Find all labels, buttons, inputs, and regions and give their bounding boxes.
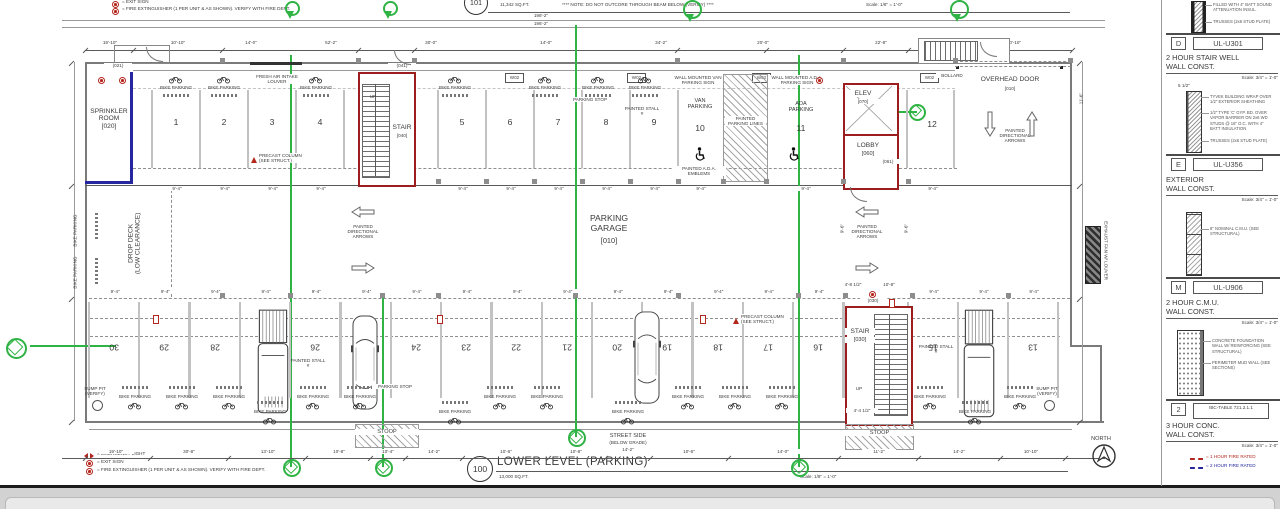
exit-sign-icon <box>112 1 119 8</box>
detail-scale: Scale: 3/4" = 1'-0" <box>1196 197 1278 202</box>
detail-divider <box>1166 277 1280 279</box>
dimension-label: 10'-6" <box>489 449 523 454</box>
wall-detail-graphic <box>1186 91 1202 153</box>
bike-parking-label: BIKE PARKING <box>719 394 751 399</box>
detail-title-underline <box>1166 195 1278 196</box>
dimension-label: 10'-6" <box>672 449 706 454</box>
detail-scale: Scale: 3/4" = 1'-0" <box>1196 75 1278 80</box>
wall-detail-graphic <box>1177 330 1204 396</box>
dimension-label: 9'-4" <box>100 289 130 294</box>
north-label: NORTH <box>1083 436 1119 442</box>
detail-note: TRUSSES (2x6 STUD PLATE) <box>1213 19 1275 24</box>
stoop <box>845 424 914 450</box>
overhead-door-label: OVERHEAD DOOR <box>960 76 1060 83</box>
stall-number: 17 <box>743 342 793 352</box>
stall-number: 23 <box>441 342 491 352</box>
ada-parking-label: ADA PARKING <box>772 101 830 114</box>
column <box>1068 58 1073 63</box>
detail-divider <box>1166 399 1280 401</box>
bike-icon <box>448 417 461 425</box>
exhaust-fan <box>1085 226 1101 284</box>
bike-rack <box>163 94 189 97</box>
legend-fire-extinguisher: = FIRE EXTINGUISHER (1 PER UNIT & AS SHO… <box>122 6 290 11</box>
precast-column-label: PRECAST COLUMN (SEE STRUCT.) <box>740 314 788 324</box>
detail-title: WALL CONST. <box>1166 63 1280 71</box>
column <box>288 293 293 298</box>
dimension-label: 9'-4" <box>503 289 533 294</box>
stall-divider <box>247 90 249 168</box>
bike-icon <box>128 402 141 410</box>
garage-label: PARKING GARAGE <box>582 214 636 233</box>
bike-parking-label: BIKE PARKING <box>529 85 561 90</box>
stall-number: 3 <box>248 118 296 128</box>
stall-number: 8 <box>582 118 630 128</box>
leader-line <box>1201 141 1209 142</box>
grid-marker-tail <box>953 14 961 22</box>
bike-icon <box>493 402 506 410</box>
detail-code: UL-U906 <box>1193 281 1263 294</box>
bike-parking-label: BIKE PARKING <box>766 394 798 399</box>
dimension-label: 14'-0" <box>766 449 800 454</box>
detail-title-underline <box>1166 318 1278 319</box>
leader-line <box>1201 97 1209 98</box>
column <box>484 179 489 184</box>
two-hour-rated-swatch <box>1190 467 1203 469</box>
grid-marker-tail <box>384 11 392 19</box>
stall-number: 16 <box>793 342 843 352</box>
stall-divider <box>88 302 90 398</box>
lower-plan-scale: Scale: 1/8" = 1'-0" <box>800 474 880 479</box>
parking-stop-label: PARKING STOP <box>568 97 612 102</box>
dimension-label: 9'-4" <box>162 186 192 191</box>
dimension-label: 9'-4" <box>919 289 949 294</box>
stall-number: 26 <box>290 342 340 352</box>
dimension-label: 10'-10" <box>1014 449 1048 454</box>
detail-tag-letter: E <box>1171 158 1186 171</box>
exit-sign-icon <box>86 460 93 467</box>
leader-line <box>1205 22 1212 23</box>
below-grade-label: (BELOW GRADE) <box>598 440 658 445</box>
architectural-sheet: 101 11,342 SQ.FT. **** NOTE: DO NOT OUTC… <box>0 0 1280 509</box>
stall-number: 6 <box>486 118 534 128</box>
bike-parking-label: BIKE PARKING <box>439 85 471 90</box>
bike-parking-label: BIKE PARKING <box>959 409 991 414</box>
detail-code: IBC-TABLE 721.2.1.1 <box>1193 403 1269 419</box>
stall-divider <box>691 302 693 398</box>
column <box>841 58 846 63</box>
legend-one-hour: = 1 HOUR FIRE RATED <box>1206 454 1256 459</box>
door-tag: (030) <box>860 298 886 303</box>
column <box>953 58 958 63</box>
bike-icon <box>775 402 788 410</box>
dimension-label: 9'-4" <box>150 289 180 294</box>
dimension-label: 9'-4" <box>791 186 821 191</box>
landing-stairs <box>924 41 978 61</box>
bike-parking-label: BIKE PARKING <box>72 211 77 251</box>
directional-arrows-label: PAINTED DIRECTIONAL ARROWS <box>347 224 379 239</box>
stoop <box>355 424 419 448</box>
door-swing-arc <box>850 187 867 202</box>
dimension-label: 9'-4" <box>210 186 240 191</box>
fire-extinguisher-icon <box>869 291 876 298</box>
exterior-wall-right <box>1070 62 1072 347</box>
bike-rack <box>95 258 98 284</box>
dimension-label: 20'-0" <box>746 40 780 45</box>
upper-plan-scale: Scale: 1/8" = 1'-0" <box>866 2 946 7</box>
ada-wheelchair-icon <box>694 147 705 160</box>
room-label-lobby: LOBBY <box>850 142 886 149</box>
overhead-door-line <box>955 66 1071 67</box>
dimension-label: 9'-4" <box>754 289 784 294</box>
precast-marker <box>733 318 739 324</box>
bike-rack <box>769 386 795 389</box>
precast-column-label: PRECAST COLUMN (SEE STRUCT.) <box>258 153 306 163</box>
stall-divider <box>138 302 140 398</box>
bike-icon <box>309 76 322 84</box>
column <box>380 293 385 298</box>
dimension-label: 9'-4" <box>258 186 288 191</box>
column <box>676 293 681 298</box>
stall-divider <box>490 302 492 398</box>
dimension-label: 14'-2" <box>417 449 451 454</box>
dimension-label: 9'-4" <box>640 186 670 191</box>
stair-treads <box>874 314 908 416</box>
stall-number: 7 <box>534 118 582 128</box>
bike-parking-label: BIKE PARKING <box>484 394 516 399</box>
overhead-door-line <box>955 61 1071 62</box>
dimension-label: 10'-8" <box>559 449 593 454</box>
stall-number: 29 <box>139 342 189 352</box>
stall-divider <box>199 90 201 168</box>
dimension-label: 14'-2" <box>598 447 658 452</box>
bike-rack <box>615 401 641 404</box>
sump-pit-label: SUMP PIT (VERIFY) <box>1032 386 1062 396</box>
bike-icon <box>448 76 461 84</box>
dimension-label: 4'-4 1/2" <box>846 408 878 413</box>
grid-marker-tail <box>686 14 694 22</box>
dimension-label: 10'-8" <box>874 282 904 287</box>
bike-parking-label: BIKE PARKING <box>297 394 329 399</box>
stall-divider <box>591 302 593 398</box>
room-label-elev: ELEV <box>847 90 879 97</box>
dim-tick <box>1070 47 1076 53</box>
drop-deck-label: DROP DECK (LOW CLEARANCE) <box>128 197 143 289</box>
up-label: UP <box>850 386 868 391</box>
detail-code: UL-U301 <box>1193 37 1263 50</box>
bike-icon <box>681 402 694 410</box>
bike-rack <box>300 386 326 389</box>
painted-stall-label: PAINTED STALL # <box>624 106 660 116</box>
stall-divider <box>533 90 535 168</box>
dimension-label: 10'-8" <box>322 449 356 454</box>
painted-stall-label: PAINTED STALL # <box>918 344 954 354</box>
stall-number: 9 <box>630 118 678 128</box>
stall-divider <box>906 90 908 168</box>
bike-parking-label: BIKE PARKING <box>672 394 704 399</box>
upper-plan-number-bubble: 101 <box>464 0 488 15</box>
bike-rack <box>442 94 468 97</box>
room-tag: [060] <box>850 151 886 157</box>
bike-parking-label: BIKE PARKING <box>208 85 240 90</box>
bike-icon <box>923 402 936 410</box>
bike-icon <box>353 402 366 410</box>
painted-stall-label: PAINTED STALL # <box>290 358 326 368</box>
overhead-door-tag: [010] <box>975 86 1045 91</box>
bike-rack <box>962 401 988 404</box>
dimension-label: 9'-4" <box>301 289 331 294</box>
dimension-label: 14'-0" <box>234 40 268 45</box>
column <box>580 179 585 184</box>
dimension-label: 34'-2" <box>644 40 678 45</box>
detail-note: CONCRETE FOUNDATION WALL W/ REINFORCING … <box>1212 338 1274 354</box>
door-tag: (041) <box>388 63 416 68</box>
stall-number: 1 <box>152 118 200 128</box>
van-parking-label: VAN PARKING <box>677 98 723 111</box>
detail-note: FILLED WITH 4" BATT SOUND ATTENUATION IN… <box>1213 2 1275 13</box>
stall-number: 21 <box>542 342 592 352</box>
dimension-label: 9'-4" <box>251 289 281 294</box>
column <box>764 179 769 184</box>
dimension-label: 11'-6" <box>1078 84 1083 114</box>
dimension-label: 14'-0" <box>529 40 563 45</box>
room-label-stair: STAIR <box>845 328 875 335</box>
bike-parking-label: BIKE PARKING <box>254 409 286 414</box>
grid-marker-tail <box>286 11 294 19</box>
lower-title-underline <box>496 471 1068 472</box>
upper-plan-sqft: 11,342 SQ.FT. <box>500 2 558 7</box>
stall-number: 22 <box>491 342 541 352</box>
stall-number: 18 <box>693 342 743 352</box>
dimension-label: 9'-4" <box>918 186 948 191</box>
stall-number: 4 <box>296 118 344 128</box>
stall-line <box>90 336 843 337</box>
dimension-label: 11'-2" <box>862 449 896 454</box>
grid-line <box>290 55 292 467</box>
bike-icon <box>175 402 188 410</box>
dimension-label: 52'-2" <box>314 40 348 45</box>
stall-divider <box>541 302 543 398</box>
street-side-label: STREET SIDE <box>598 433 658 439</box>
stall-number: 30 <box>89 342 139 352</box>
bike-rack <box>532 94 558 97</box>
bike-parking-label: BIKE PARKING <box>531 394 563 399</box>
dimension-label: 9'-4" <box>553 289 583 294</box>
bike-parking-label: BIKE PARKING <box>612 409 644 414</box>
leader-line <box>1203 363 1211 364</box>
dimension-label: 9'-4" <box>352 289 382 294</box>
fire-marker <box>889 299 895 308</box>
directional-arrows-label: PAINTED DIRECTIONAL ARROWS <box>995 128 1035 143</box>
chrome-inner-window <box>5 497 1275 509</box>
drop-deck-boundary <box>171 190 172 297</box>
stall-divider <box>1057 302 1059 398</box>
stair-rail <box>889 314 890 414</box>
column <box>910 293 915 298</box>
stall-divider <box>957 302 959 398</box>
leader-line <box>1201 113 1209 114</box>
stall-line <box>89 298 1070 299</box>
detail-dim: 5 1/2" <box>1178 83 1208 88</box>
stall-front-line <box>133 168 957 169</box>
stall-line <box>90 318 843 319</box>
column <box>906 179 911 184</box>
detail-divider <box>1166 154 1280 156</box>
fire-marker <box>437 315 443 324</box>
one-hour-rated-swatch <box>1190 458 1203 460</box>
fire-marker <box>700 315 706 324</box>
right-arrow <box>856 262 878 274</box>
bike-rack <box>722 386 748 389</box>
dimension-label: 9'-4" <box>704 289 734 294</box>
stall-divider <box>343 90 345 168</box>
dimension-label: 9'-4" <box>804 289 834 294</box>
room-label-sprinkler: SPRINKLER ROOM [020] <box>86 108 132 130</box>
dim-tick <box>69 420 75 426</box>
dimension-label: 14'-2" <box>942 449 976 454</box>
column <box>220 293 225 298</box>
left-arrow <box>352 206 374 218</box>
bike-icon <box>621 417 634 425</box>
fire-marker <box>153 315 159 324</box>
exhaust-fan-label: EXHAUST FAN W/ LOUVER <box>1103 221 1108 281</box>
stoop-label: STOOP <box>845 430 914 436</box>
fire-extinguisher-icon <box>816 77 823 84</box>
leader-line <box>1203 341 1211 342</box>
ada-wheelchair-icon <box>788 147 799 160</box>
garage-tag: [010] <box>582 237 636 245</box>
detail-tag-letter: 2 <box>1171 403 1186 416</box>
stall-divider <box>485 90 487 168</box>
sprinkler-rated-wall <box>85 181 132 184</box>
column <box>843 293 848 298</box>
bike-rack <box>95 213 98 239</box>
directional-arrows-label: PAINTED DIRECTIONAL ARROWS <box>851 224 883 239</box>
bike-rack <box>442 401 468 404</box>
detail-tag-letter: M <box>1171 281 1186 294</box>
dimension-label: 4'-8 1/2" <box>838 282 868 287</box>
column <box>573 293 578 298</box>
dimension-label: 30'-8" <box>172 449 206 454</box>
painted-lines-label: PAINTED PARKING LINES <box>725 116 766 126</box>
sidebar-separator <box>1161 0 1162 486</box>
sump-pit <box>1044 400 1055 411</box>
parked-car <box>632 310 662 406</box>
stall-divider <box>792 302 794 398</box>
dimension-label: 9'-4" <box>969 289 999 294</box>
stall-number: 10 <box>677 124 723 134</box>
fresh-air-label: FRESH AIR INTAKE LOUVER <box>250 74 304 84</box>
dimension-label: 9'-6" <box>903 215 908 243</box>
detail-scale: Scale: 3/4" = 1'-0" <box>1196 443 1278 448</box>
column <box>412 58 417 63</box>
bike-rack <box>632 94 658 97</box>
louver <box>250 62 302 65</box>
column <box>721 179 726 184</box>
room-label-stair: STAIR <box>390 124 414 131</box>
stall-number: 5 <box>438 118 486 128</box>
legend-two-hour: = 2 HOUR FIRE RATED <box>1206 463 1256 468</box>
bike-parking-label: BIKE PARKING <box>914 394 946 399</box>
bike-parking-label: BIKE PARKING <box>213 394 245 399</box>
column <box>532 179 537 184</box>
wall-detail-graphic <box>1191 1 1206 33</box>
dimension-label: 9'-4" <box>592 186 622 191</box>
grid-line <box>575 25 577 437</box>
fire-extinguisher-icon <box>119 77 126 84</box>
grid-line <box>798 55 800 467</box>
bike-icon <box>169 76 182 84</box>
bike-rack <box>487 386 513 389</box>
detail-note: TYVEK BUILDING WRAP OVER 1/2" EXTERIOR S… <box>1210 94 1272 105</box>
dim-line <box>62 27 1105 28</box>
precast-marker <box>251 157 257 163</box>
stoop-label: STOOP <box>355 429 419 435</box>
stall-number: 11 <box>772 124 830 134</box>
dimension-label: 9'-6" <box>839 215 844 243</box>
exterior-wall-jog <box>1070 345 1102 347</box>
bike-icon <box>728 402 741 410</box>
bike-icon <box>263 417 276 425</box>
column <box>220 58 225 63</box>
left-arrow <box>856 206 878 218</box>
bike-icon <box>538 76 551 84</box>
dimension-label: 9'-4" <box>448 186 478 191</box>
exterior-wall-bottom <box>85 421 1104 423</box>
bike-rack <box>216 386 242 389</box>
column <box>436 179 441 184</box>
stall-number: 28 <box>190 342 240 352</box>
room-tag: [030] <box>845 337 875 343</box>
column <box>796 293 801 298</box>
window-tag: W02 <box>505 73 524 83</box>
leader-line <box>1201 229 1209 230</box>
dimension-label: 19'-10" <box>99 449 133 454</box>
lower-plan-sqft: 13,000 SQ.FT. <box>499 474 559 479</box>
bike-rack <box>169 386 195 389</box>
legend-exit-sign: = EXIT SIGN <box>97 459 124 464</box>
parking-stop-label: PARKING STOP <box>372 384 418 389</box>
dimension-label: 10'-4" <box>371 449 405 454</box>
detail-title: WALL CONST. <box>1166 308 1280 316</box>
bike-parking-label: BIKE PARKING <box>300 85 332 90</box>
stall-divider <box>1007 302 1009 398</box>
detail-code: UL-U356 <box>1193 158 1263 171</box>
bike-icon <box>968 417 981 425</box>
bike-icon <box>306 402 319 410</box>
bike-icon <box>591 76 604 84</box>
bike-rack <box>1007 386 1033 389</box>
bike-parking-label: BIKE PARKING <box>160 85 192 90</box>
room-tag: [070] <box>847 99 879 104</box>
column <box>356 58 361 63</box>
bike-rack <box>211 94 237 97</box>
detail-title-underline <box>1166 73 1278 74</box>
dimension-label: 9'-4" <box>496 186 526 191</box>
bike-rack <box>122 386 148 389</box>
bike-parking-label: BIKE PARKING <box>344 394 376 399</box>
detail-scale: Scale: 3/4" = 1'-0" <box>1196 320 1278 325</box>
leader-line <box>1205 5 1212 6</box>
bike-rack <box>917 386 943 389</box>
stall-divider <box>953 90 955 168</box>
dimension-label: 9'-4" <box>201 289 231 294</box>
dimension-label: 198'-2" <box>500 13 582 18</box>
stall-number: 2 <box>200 118 248 128</box>
dimension-label: 9'-4" <box>544 186 574 191</box>
lower-plan-number-bubble: 100 <box>467 456 493 482</box>
stall-number: 13 <box>1008 342 1058 352</box>
dim-line <box>62 458 1105 459</box>
